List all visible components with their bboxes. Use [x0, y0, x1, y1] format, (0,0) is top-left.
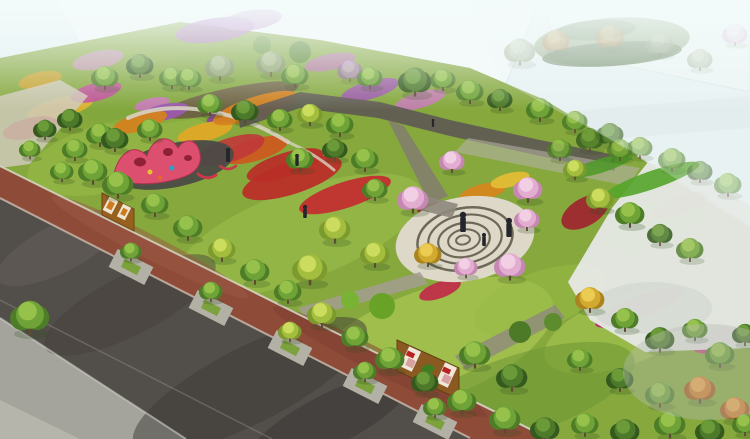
shrub: [544, 313, 562, 331]
person-figure: [482, 233, 486, 246]
play-toy: [170, 166, 175, 171]
sculpture-hole: [134, 158, 146, 167]
person-figure: [226, 148, 230, 162]
person-figure: [303, 205, 307, 218]
play-toy: [158, 176, 162, 180]
park-rendering-canvas: [0, 0, 750, 439]
person-figure: [506, 218, 512, 237]
person-figure: [460, 212, 466, 232]
play-toy: [148, 170, 153, 175]
sculpture-hole: [163, 148, 173, 156]
shrub: [369, 293, 395, 319]
person-figure: [295, 154, 299, 166]
horizon-fade: [0, 0, 750, 110]
shrub: [341, 291, 359, 309]
park-rendering: [0, 0, 750, 439]
sculpture-hole: [184, 155, 192, 161]
shrub: [509, 321, 531, 343]
person-figure: [432, 119, 435, 127]
